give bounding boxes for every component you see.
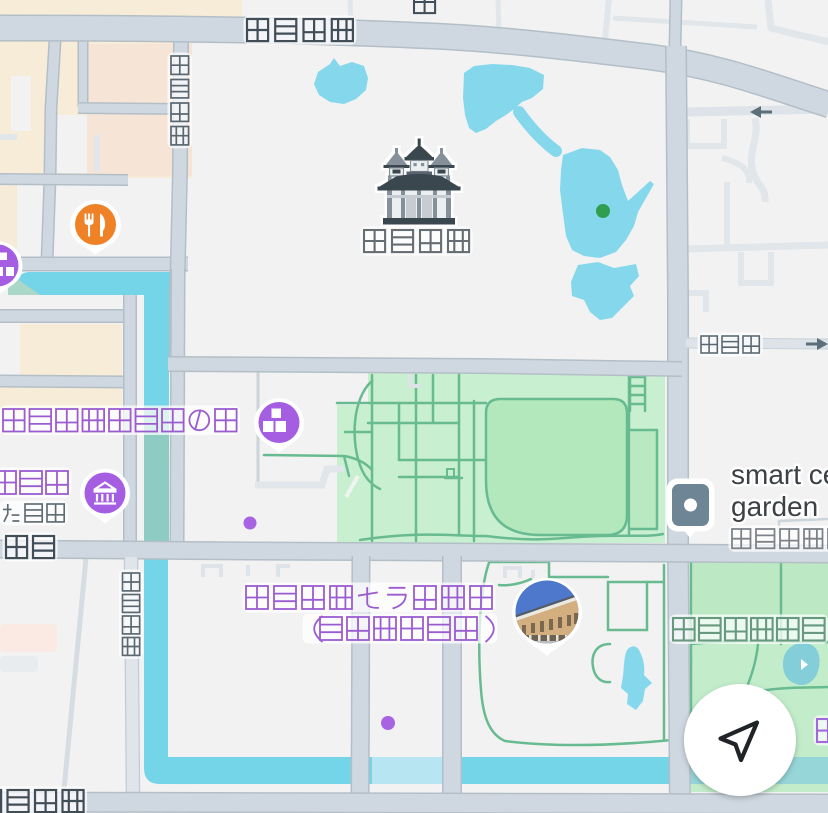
- svg-text:smart ce: smart ce: [731, 459, 828, 490]
- svg-text:garden: garden: [731, 491, 818, 522]
